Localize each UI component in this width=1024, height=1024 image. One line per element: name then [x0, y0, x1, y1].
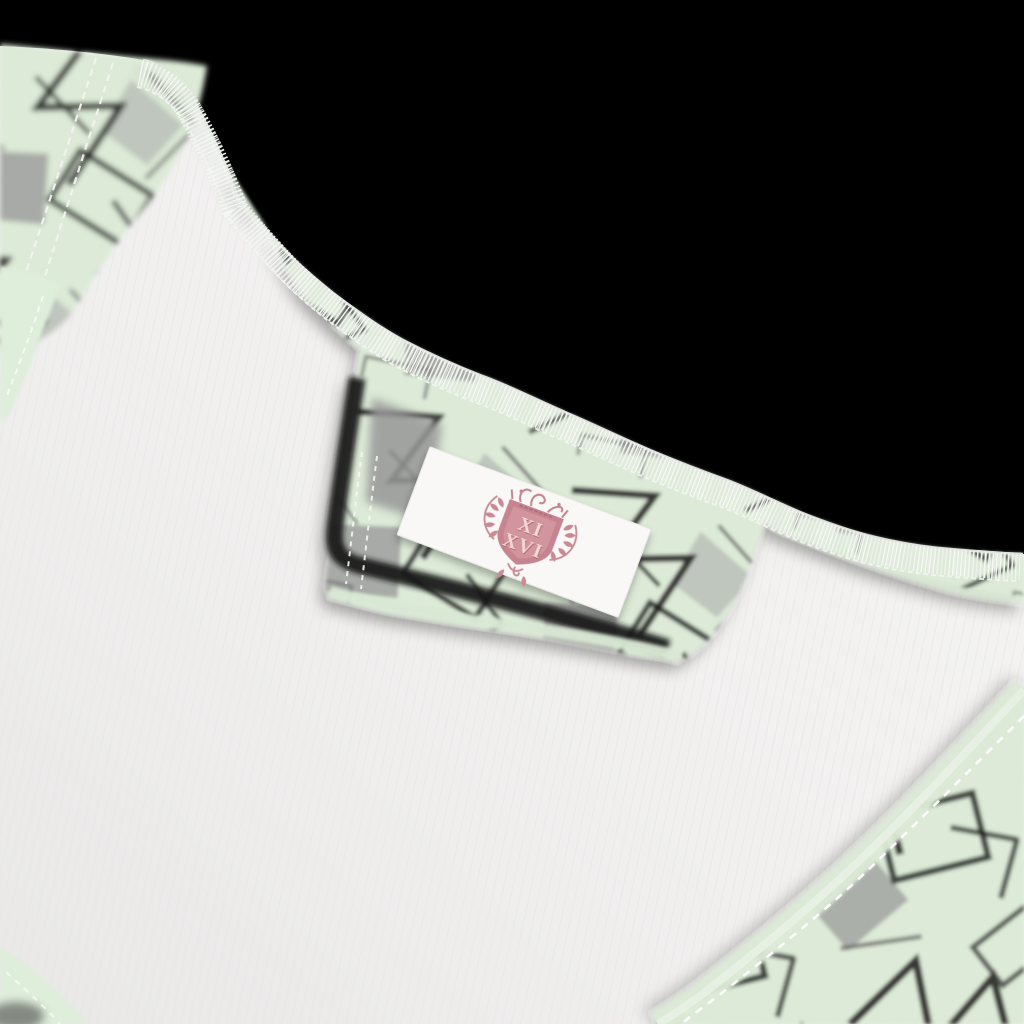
- product-photo: XI XI XVI XVI: [0, 0, 1024, 1024]
- photo-canvas: XI XI XVI XVI: [0, 0, 1024, 1024]
